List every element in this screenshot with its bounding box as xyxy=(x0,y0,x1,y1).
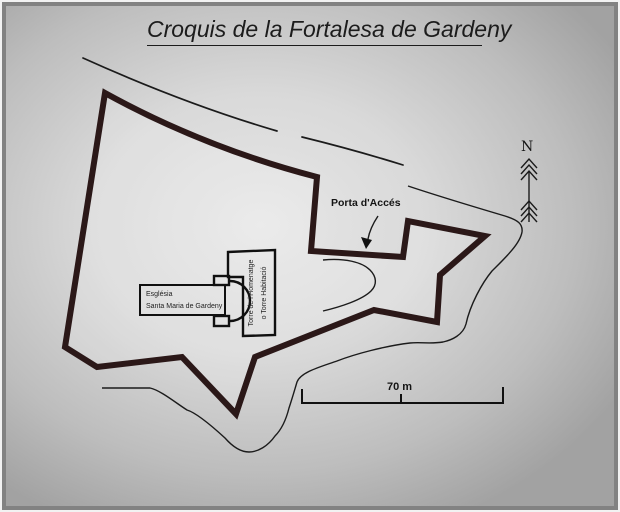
gate-arrow-shaft xyxy=(368,216,378,239)
map-canvas: Croquis de la Fortalesa de Gardeny Porta… xyxy=(0,0,620,512)
gate-label: Porta d'Accés xyxy=(331,197,401,209)
title-underline xyxy=(147,45,482,46)
road-line-lower xyxy=(302,137,403,165)
scale-bar-label: 70 m xyxy=(387,381,412,393)
church-label-line2: Santa Maria de Gardeny xyxy=(146,301,224,313)
church-label-box: Església Santa Maria de Gardeny xyxy=(139,284,226,316)
church-label-line1: Església xyxy=(146,289,224,301)
tower-label-line1: Torre de l'Homenatge xyxy=(245,250,258,336)
fortress-map-drawing xyxy=(0,0,620,512)
tower-label-line2: o Torre Habitació xyxy=(258,250,271,336)
tower-label: Torre de l'Homenatge o Torre Habitació xyxy=(245,250,273,336)
map-title: Croquis de la Fortalesa de Gardeny xyxy=(147,16,511,43)
north-arrow-icon xyxy=(521,159,537,222)
gate-arrow-head-icon xyxy=(361,237,372,249)
north-label: N xyxy=(521,139,533,155)
